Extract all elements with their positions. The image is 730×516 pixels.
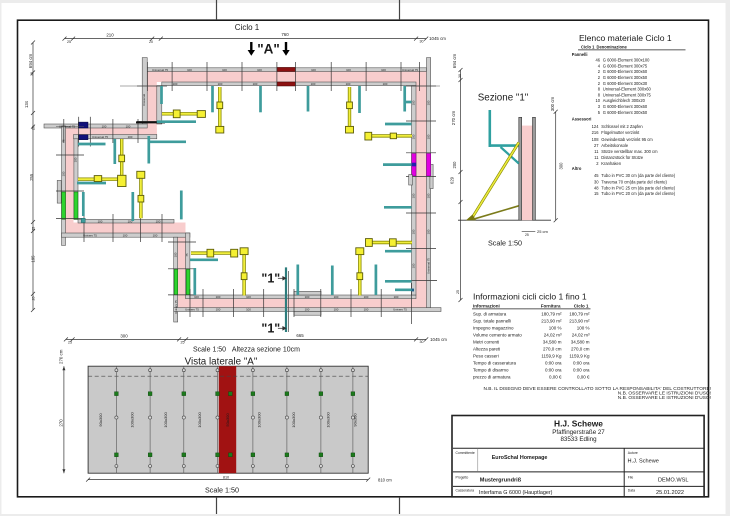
- svg-text:Informazioni cicli ciclo 1 fi: Informazioni cicli ciclo 1 fino 1: [473, 292, 587, 302]
- svg-text:Mustergrundriß: Mustergrundriß: [480, 478, 522, 484]
- svg-text:100: 100: [346, 68, 351, 72]
- svg-text:"A": "A": [257, 42, 280, 57]
- svg-text:100: 100: [412, 193, 416, 198]
- svg-text:200: 200: [452, 161, 457, 169]
- svg-text:G 6000-Element 300x75: G 6000-Element 300x75: [603, 63, 648, 68]
- svg-text:"1": "1": [261, 271, 280, 285]
- svg-text:10: 10: [595, 98, 600, 103]
- svg-text:100: 100: [412, 100, 416, 105]
- svg-text:100: 100: [153, 233, 158, 237]
- svg-text:100: 100: [173, 82, 178, 86]
- svg-text:100: 100: [102, 124, 107, 128]
- svg-text:100x300: 100x300: [130, 412, 135, 428]
- svg-text:0,00 €: 0,00 €: [549, 374, 562, 379]
- svg-text:15: 15: [594, 191, 599, 196]
- svg-text:Universal 75: Universal 75: [402, 68, 418, 72]
- svg-text:100: 100: [216, 308, 221, 312]
- svg-text:Casseratura: Casseratura: [456, 489, 475, 493]
- svg-text:300: 300: [559, 162, 564, 170]
- svg-text:1159,9 Kg: 1159,9 Kg: [541, 353, 562, 358]
- svg-text:100: 100: [98, 220, 103, 224]
- svg-text:N.B. OSSERVARE LE ISTRUZIONI D: N.B. OSSERVARE LE ISTRUZIONI D'USO!: [618, 395, 711, 401]
- svg-text:Ciclo 1: Ciclo 1: [574, 303, 589, 308]
- svg-text:75: 75: [61, 139, 65, 143]
- svg-text:Kranhaken: Kranhaken: [601, 161, 622, 166]
- svg-text:629: 629: [450, 176, 455, 184]
- svg-text:G 6000-Element 300x60: G 6000-Element 300x60: [603, 104, 648, 109]
- svg-text:Tubo in PVC 30 cm (da parte de: Tubo in PVC 30 cm (da parte del cliente): [601, 173, 675, 178]
- svg-text:Data: Data: [628, 488, 635, 492]
- svg-text:300 cm: 300 cm: [550, 96, 555, 111]
- svg-text:Sezione "1": Sezione "1": [478, 93, 529, 104]
- svg-text:Autore: Autore: [628, 451, 638, 455]
- svg-text:100: 100: [311, 68, 316, 72]
- svg-text:100: 100: [346, 82, 351, 86]
- svg-text:25.01.2022: 25.01.2022: [656, 490, 684, 496]
- svg-text:694 cm: 694 cm: [452, 53, 457, 68]
- svg-text:Scale 1:50: Scale 1:50: [205, 486, 239, 495]
- svg-text:760: 760: [281, 32, 289, 37]
- svg-text:0:00 ora: 0:00 ora: [573, 360, 590, 365]
- svg-text:100: 100: [426, 134, 430, 139]
- svg-text:134: 134: [24, 100, 29, 108]
- svg-text:90x300: 90x300: [98, 413, 103, 427]
- svg-text:100: 100: [246, 295, 251, 299]
- svg-text:270: 270: [59, 419, 64, 427]
- svg-text:100: 100: [394, 295, 399, 299]
- svg-text:100: 100: [194, 295, 199, 299]
- svg-text:25: 25: [68, 341, 72, 345]
- svg-text:694 cm: 694 cm: [28, 53, 33, 68]
- svg-text:810: 810: [223, 475, 229, 479]
- svg-text:100: 100: [426, 100, 430, 105]
- svg-text:100: 100: [364, 308, 369, 312]
- svg-text:0:00 ora: 0:00 ora: [573, 367, 590, 372]
- svg-text:25: 25: [181, 341, 185, 345]
- svg-text:100: 100: [253, 82, 258, 86]
- svg-text:Schlüssel mit 2 Zapfen: Schlüssel mit 2 Zapfen: [601, 124, 643, 129]
- svg-text:Univers 75: Univers 75: [393, 308, 407, 312]
- svg-text:Sup. totale pannelli: Sup. totale pannelli: [473, 318, 511, 323]
- svg-text:100: 100: [412, 229, 416, 234]
- svg-text:100: 100: [187, 68, 192, 72]
- svg-text:100: 100: [257, 68, 262, 72]
- svg-text:216: 216: [592, 130, 600, 135]
- svg-text:665: 665: [296, 333, 304, 338]
- svg-text:180,79 m²: 180,79 m²: [541, 311, 562, 316]
- svg-text:20: 20: [31, 297, 35, 301]
- svg-text:30: 30: [420, 39, 424, 43]
- svg-text:11: 11: [594, 149, 599, 154]
- svg-text:Universal 75: Universal 75: [426, 258, 430, 274]
- svg-text:Traversa 70 cm(da parte del cl: Traversa 70 cm(da parte del cliente): [601, 179, 667, 184]
- svg-text:Elenco materiale Ciclo 1: Elenco materiale Ciclo 1: [579, 33, 672, 43]
- svg-text:0:00 ora: 0:00 ora: [545, 360, 562, 365]
- svg-text:Ausgleichblech 300x20: Ausgleichblech 300x20: [603, 98, 646, 103]
- svg-text:1159,9 Kg: 1159,9 Kg: [569, 353, 590, 358]
- svg-text:Tempo di casseratura: Tempo di casseratura: [473, 360, 517, 365]
- svg-text:24,02 m³: 24,02 m³: [544, 332, 562, 337]
- svg-text:100x300: 100x300: [291, 412, 296, 428]
- svg-text:100x300: 100x300: [197, 412, 202, 428]
- svg-text:Distanzstück für Stütze: Distanzstück für Stütze: [601, 155, 644, 160]
- svg-text:Peso casseri: Peso casseri: [473, 353, 499, 358]
- svg-text:100: 100: [311, 82, 316, 86]
- svg-text:810 cm: 810 cm: [378, 477, 392, 482]
- svg-text:G 6000-Element 300x100: G 6000-Element 300x100: [603, 58, 650, 63]
- svg-text:45: 45: [594, 173, 599, 178]
- svg-text:1045 cm: 1045 cm: [430, 337, 447, 342]
- svg-text:Flügelmutter verzinkt: Flügelmutter verzinkt: [601, 130, 640, 135]
- svg-text:Metri correnti: Metri correnti: [473, 339, 499, 344]
- svg-text:Univers 75: Univers 75: [174, 300, 178, 314]
- svg-text:G 6000-Element 300x60: G 6000-Element 300x60: [603, 69, 648, 74]
- svg-text:100: 100: [334, 295, 339, 299]
- svg-text:25: 25: [67, 40, 71, 44]
- svg-text:100: 100: [334, 308, 339, 312]
- svg-text:100: 100: [222, 68, 227, 72]
- svg-text:H.J. Schewe: H.J. Schewe: [554, 419, 603, 429]
- svg-text:Committente: Committente: [456, 451, 475, 455]
- svg-text:34,580 m: 34,580 m: [543, 339, 562, 344]
- svg-text:G 6000-Element 300x50: G 6000-Element 300x50: [603, 110, 648, 115]
- svg-text:270,0 cm: 270,0 cm: [571, 346, 590, 351]
- svg-text:Scale 1:50: Scale 1:50: [488, 239, 522, 248]
- svg-text:34,580 m: 34,580 m: [571, 339, 590, 344]
- svg-text:Universal 75: Universal 75: [152, 68, 168, 72]
- svg-text:300: 300: [120, 333, 128, 338]
- svg-text:270 cm: 270 cm: [451, 110, 456, 125]
- svg-text:Fornitura: Fornitura: [541, 303, 561, 308]
- svg-text:Scale 1:50 Altezza sezione 1: Scale 1:50 Altezza sezione 10cm: [193, 347, 300, 354]
- svg-text:Assessori: Assessori: [572, 117, 592, 122]
- svg-text:EuroSchal Homepage: EuroSchal Homepage: [492, 455, 548, 461]
- svg-text:100: 100: [216, 295, 221, 299]
- svg-text:Univers 75: Univers 75: [83, 233, 97, 237]
- svg-text:83533 Edling: 83533 Edling: [560, 436, 597, 443]
- svg-text:195: 195: [30, 255, 35, 263]
- svg-text:H.J. Schewe: H.J. Schewe: [628, 459, 659, 465]
- svg-text:90x300: 90x300: [353, 413, 358, 427]
- svg-text:27: 27: [594, 143, 599, 148]
- svg-text:100: 100: [412, 263, 416, 268]
- svg-text:Interfama G 6000 (Hauptlager): Interfama G 6000 (Hauptlager): [479, 490, 553, 496]
- svg-text:100: 100: [381, 68, 386, 72]
- svg-text:Universal: Universal: [142, 94, 146, 106]
- svg-text:30: 30: [458, 74, 462, 78]
- svg-text:Sup. di armatura: Sup. di armatura: [473, 311, 507, 316]
- svg-text:100: 100: [128, 135, 133, 139]
- svg-text:25: 25: [525, 233, 529, 237]
- svg-text:124: 124: [592, 124, 600, 129]
- svg-text:25: 25: [31, 227, 35, 231]
- svg-text:100: 100: [74, 157, 78, 162]
- svg-text:"1": "1": [261, 321, 280, 335]
- svg-text:100x300: 100x300: [326, 412, 331, 428]
- svg-text:G 6000-Element 300x30: G 6000-Element 300x30: [603, 81, 648, 86]
- svg-text:Univers 75: Univers 75: [185, 308, 199, 312]
- svg-text:100x300: 100x300: [257, 412, 262, 428]
- svg-text:Informazioni: Informazioni: [473, 303, 500, 308]
- svg-text:DEMO.WSL: DEMO.WSL: [658, 477, 688, 483]
- svg-text:25 cm: 25 cm: [537, 229, 549, 234]
- svg-text:Altezza pareti: Altezza pareti: [473, 346, 500, 351]
- svg-text:270,0 cm: 270,0 cm: [543, 346, 562, 351]
- svg-text:180,79 m²: 180,79 m²: [569, 311, 590, 316]
- svg-text:20: 20: [31, 126, 35, 130]
- svg-text:Altro: Altro: [572, 166, 582, 171]
- svg-text:1045 cm: 1045 cm: [429, 36, 446, 41]
- svg-text:100: 100: [383, 82, 388, 86]
- svg-text:Universal 75: Universal 75: [59, 124, 75, 128]
- svg-text:Vista laterale "A": Vista laterale "A": [185, 356, 258, 367]
- svg-text:100: 100: [412, 134, 416, 139]
- svg-text:100: 100: [126, 124, 131, 128]
- svg-text:25: 25: [456, 290, 460, 294]
- svg-text:0:00 ora: 0:00 ora: [545, 367, 562, 372]
- svg-text:30: 30: [420, 340, 424, 344]
- svg-text:100: 100: [156, 220, 161, 224]
- svg-text:213,90 m²: 213,90 m²: [541, 318, 562, 323]
- svg-text:100: 100: [246, 308, 251, 312]
- svg-text:Denominazione: Denominazione: [597, 44, 628, 49]
- svg-text:108: 108: [592, 137, 600, 142]
- svg-text:100: 100: [305, 308, 310, 312]
- svg-text:20: 20: [149, 40, 153, 44]
- svg-text:Ciclo 1: Ciclo 1: [235, 23, 260, 32]
- svg-text:48: 48: [594, 186, 599, 191]
- svg-text:100: 100: [305, 295, 310, 299]
- svg-text:100: 100: [123, 233, 128, 237]
- svg-text:File: File: [628, 475, 634, 479]
- svg-text:Ciclo 1: Ciclo 1: [581, 44, 595, 49]
- svg-text:prezzo di armatura: prezzo di armatura: [473, 374, 511, 379]
- svg-text:G 6000-Element 300x50: G 6000-Element 300x50: [603, 75, 648, 80]
- svg-text:11: 11: [594, 155, 599, 160]
- svg-text:Universal 75: Universal 75: [92, 135, 108, 139]
- svg-text:100: 100: [61, 171, 65, 176]
- svg-text:Stütze verstellbar max. 300 cm: Stütze verstellbar max. 300 cm: [601, 149, 658, 154]
- svg-text:100: 100: [426, 229, 430, 234]
- svg-text:30: 30: [30, 72, 34, 76]
- svg-text:50x300: 50x300: [225, 413, 230, 427]
- svg-text:24,02 m³: 24,02 m³: [572, 332, 590, 337]
- svg-text:Volume cemento armato: Volume cemento armato: [473, 332, 522, 337]
- svg-text:Progetto: Progetto: [456, 476, 469, 480]
- svg-text:Tempo di disarmo: Tempo di disarmo: [473, 367, 509, 372]
- svg-text:100: 100: [218, 82, 223, 86]
- svg-text:Universal-Element 300x75: Universal-Element 300x75: [603, 92, 652, 97]
- svg-text:100x300: 100x300: [163, 412, 168, 428]
- svg-text:100: 100: [174, 252, 178, 257]
- svg-text:Tubo in PVC 25 cm (da parte de: Tubo in PVC 25 cm (da parte del cliente): [601, 186, 675, 191]
- svg-text:270 cm: 270 cm: [58, 349, 63, 364]
- svg-text:Gewindestab verzinkt 95 cm: Gewindestab verzinkt 95 cm: [601, 137, 653, 142]
- svg-text:Universal-Element 300x60: Universal-Element 300x60: [603, 87, 652, 92]
- svg-text:75: 75: [185, 253, 189, 257]
- svg-text:100: 100: [426, 193, 430, 198]
- svg-text:210: 210: [106, 33, 114, 38]
- svg-text:213,90 m²: 213,90 m²: [569, 318, 590, 323]
- svg-text:Arbeitskonsole: Arbeitskonsole: [601, 143, 629, 148]
- svg-text:46: 46: [595, 58, 600, 63]
- svg-text:100: 100: [364, 295, 369, 299]
- svg-text:0,00 €: 0,00 €: [577, 374, 590, 379]
- svg-text:100 %: 100 %: [577, 325, 590, 330]
- svg-text:30: 30: [594, 179, 599, 184]
- svg-text:Impegno magazzino: Impegno magazzino: [473, 325, 514, 330]
- svg-text:Tubo in PVC 20 cm (da parte de: Tubo in PVC 20 cm (da parte del cliente): [601, 191, 675, 196]
- svg-text:100 %: 100 %: [549, 325, 562, 330]
- svg-text:255: 255: [29, 173, 34, 181]
- svg-text:Pannelli: Pannelli: [572, 52, 588, 57]
